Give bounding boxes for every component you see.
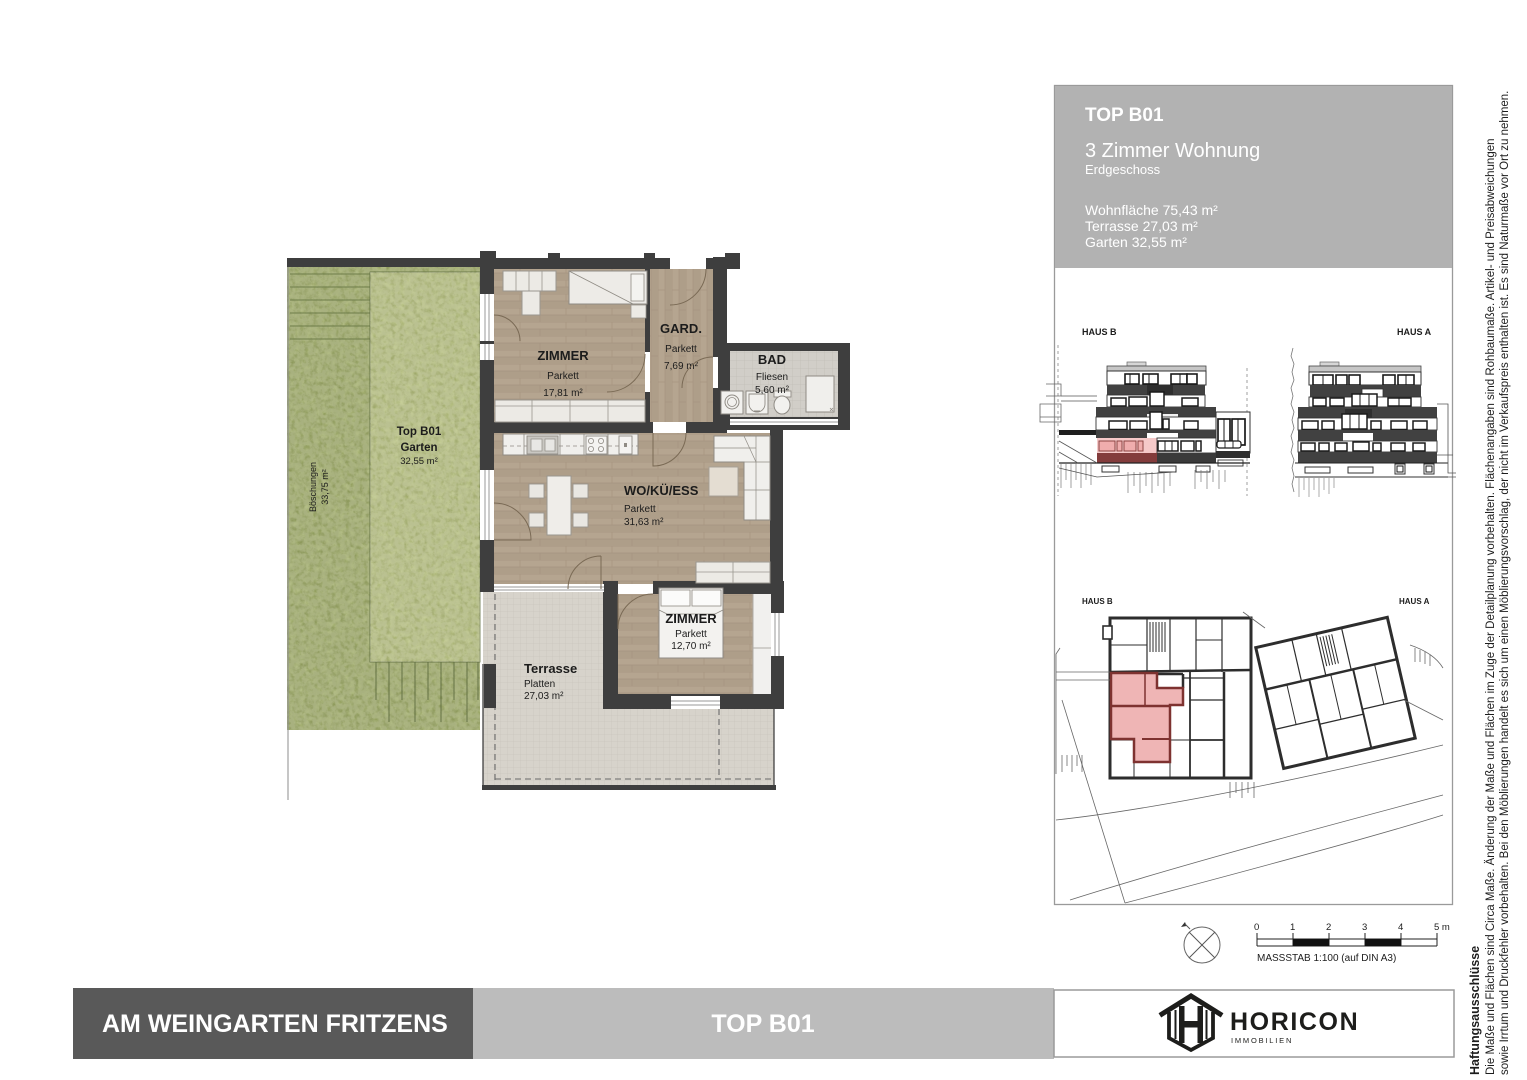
svg-text:0: 0 (1254, 922, 1259, 933)
svg-text:Parkett: Parkett (547, 371, 579, 382)
svg-text:HAUS B: HAUS B (1082, 327, 1117, 337)
svg-text:HAUS A: HAUS A (1397, 327, 1432, 337)
svg-text:31,63 m²: 31,63 m² (624, 517, 664, 528)
svg-text:HORICON: HORICON (1230, 1008, 1359, 1036)
svg-text:33,75 m²: 33,75 m² (320, 469, 330, 505)
svg-text:2: 2 (1326, 922, 1331, 933)
svg-text:12,70 m²: 12,70 m² (671, 641, 711, 652)
svg-text:Böschungen: Böschungen (308, 462, 318, 512)
svg-text:Top B01: Top B01 (397, 426, 442, 438)
svg-text:Parkett: Parkett (624, 504, 656, 515)
svg-text:BAD: BAD (758, 352, 786, 367)
svg-text:1: 1 (1290, 922, 1295, 933)
svg-text:MASSSTAB 1:100 (auf DIN A3): MASSSTAB 1:100 (auf DIN A3) (1257, 953, 1396, 964)
svg-text:3: 3 (1362, 922, 1367, 933)
svg-text:Garten 32,55 m²: Garten 32,55 m² (1085, 234, 1187, 250)
svg-text:Parkett: Parkett (675, 629, 707, 640)
svg-text:3 Zimmer Wohnung: 3 Zimmer Wohnung (1085, 140, 1260, 162)
svg-text:IMMOBILIEN: IMMOBILIEN (1231, 1036, 1293, 1045)
svg-text:TOP B01: TOP B01 (1085, 105, 1164, 126)
svg-text:GARD.: GARD. (660, 321, 702, 336)
svg-text:4: 4 (1398, 922, 1403, 933)
svg-text:27,03 m²: 27,03 m² (524, 691, 564, 702)
svg-text:17,81 m²: 17,81 m² (543, 388, 583, 399)
svg-text:HAUS A: HAUS A (1399, 597, 1430, 606)
svg-text:AM WEINGARTEN FRITZENS: AM WEINGARTEN FRITZENS (102, 1010, 448, 1038)
svg-text:Haftungsausschlüsse: Haftungsausschlüsse (1468, 946, 1482, 1075)
svg-text:Terrasse 27,03 m²: Terrasse 27,03 m² (1085, 218, 1198, 234)
svg-text:5 m: 5 m (1434, 922, 1450, 933)
svg-text:Die Maße und Flächen sind Circ: Die Maße und Flächen sind Circa Maße. Än… (1485, 138, 1497, 1075)
svg-text:Garten: Garten (400, 442, 437, 454)
svg-text:5,60 m²: 5,60 m² (755, 385, 790, 396)
svg-text:Wohnfläche 75,43 m²: Wohnfläche 75,43 m² (1085, 202, 1218, 218)
svg-text:HAUS B: HAUS B (1082, 597, 1113, 606)
svg-text:TOP B01: TOP B01 (711, 1010, 814, 1038)
svg-text:Platten: Platten (524, 679, 555, 690)
svg-text:ZIMMER: ZIMMER (537, 348, 589, 363)
svg-text:ZIMMER: ZIMMER (665, 611, 717, 626)
svg-text:7,69 m²: 7,69 m² (664, 361, 699, 372)
svg-text:32,55 m²: 32,55 m² (400, 456, 438, 467)
svg-text:WO/KÜ/ESS: WO/KÜ/ESS (624, 483, 699, 498)
svg-text:sowie Irrtum und Druckfehler v: sowie Irrtum und Druckfehler vorbehalten… (1499, 91, 1511, 1075)
svg-text:Parkett: Parkett (665, 344, 697, 355)
svg-text:Fliesen: Fliesen (756, 372, 788, 383)
svg-text:Terrasse: Terrasse (524, 661, 577, 676)
svg-text:Erdgeschoss: Erdgeschoss (1085, 162, 1161, 177)
